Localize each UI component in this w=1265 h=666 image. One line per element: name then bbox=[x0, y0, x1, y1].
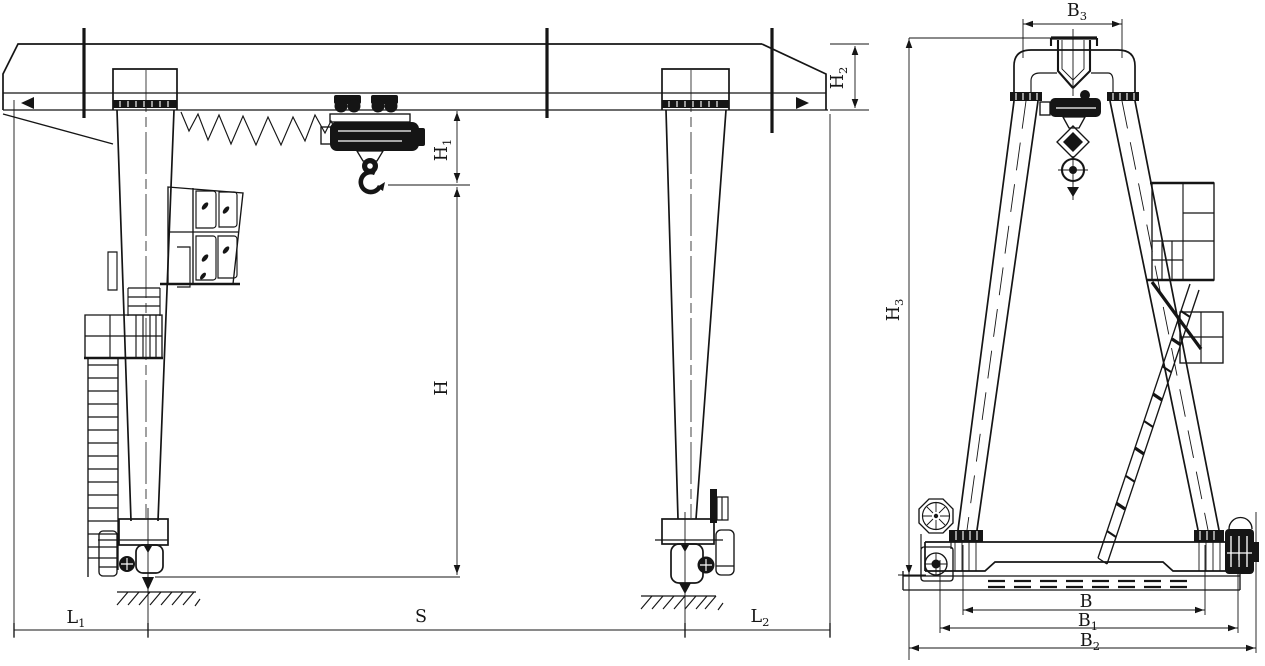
lower-cabinet-grid bbox=[1180, 312, 1223, 363]
cable-drum-hub bbox=[934, 514, 938, 518]
festoon-cable bbox=[181, 112, 333, 145]
leg-centerlines bbox=[967, 101, 1208, 530]
upper-cabinet-caps bbox=[1147, 183, 1214, 280]
dimension-label-b2: B2 bbox=[1080, 631, 1100, 653]
right-foot-band bbox=[1194, 530, 1224, 542]
arch-inner bbox=[1031, 73, 1113, 97]
left-leg bbox=[108, 69, 190, 521]
front-elevation-view: H1 H2 H L1 S L2 bbox=[3, 28, 869, 638]
hoist-end-view bbox=[1040, 90, 1101, 200]
arch-outer bbox=[1014, 50, 1135, 97]
right-buffer bbox=[716, 530, 734, 575]
dimension-label-h1: H1 bbox=[432, 139, 454, 162]
top-frame bbox=[1010, 29, 1139, 101]
hoist-side-box bbox=[1040, 102, 1050, 115]
side-elevation-view: B3 H3 B B1 B2 bbox=[884, 1, 1259, 660]
right-bracket-frame bbox=[717, 497, 728, 520]
right-bracket-plate bbox=[710, 489, 717, 523]
right-leg bbox=[662, 69, 729, 519]
cabinet-doors bbox=[196, 191, 237, 280]
dimension-arrowheads bbox=[454, 46, 859, 574]
hidden-lines bbox=[988, 581, 1188, 587]
right-leg-outline bbox=[662, 69, 729, 519]
drawing-sheet: H1 H2 H L1 S L2 bbox=[0, 0, 1265, 666]
left-leg-outline bbox=[113, 69, 177, 521]
dimension-label-h: H bbox=[432, 380, 452, 395]
dimension-label-b3: B3 bbox=[1067, 1, 1087, 23]
hook-pulley-hub bbox=[367, 163, 373, 169]
left-buffer bbox=[99, 531, 117, 576]
access-structure bbox=[84, 288, 163, 577]
electrical-cabinet bbox=[160, 187, 243, 284]
dimension-label-b: B bbox=[1080, 592, 1093, 612]
sill-beam-outline bbox=[925, 542, 1233, 571]
dimension-label-h2: H2 bbox=[828, 67, 850, 90]
dimension-label-s: S bbox=[415, 607, 427, 627]
hoist-right-cap bbox=[416, 128, 425, 146]
gantry-crane-technical-drawing: H1 H2 H L1 S L2 bbox=[0, 0, 1265, 666]
dimension-label-b1: B1 bbox=[1078, 611, 1098, 633]
cabinet-door-handles bbox=[199, 201, 231, 280]
left-ground-hatch bbox=[117, 592, 200, 606]
left-foot-band bbox=[949, 530, 983, 542]
drive-motor-cap bbox=[1229, 518, 1252, 530]
front-view-dimensions: H1 H2 H L1 S L2 bbox=[14, 44, 869, 638]
sill-beam-assembly bbox=[903, 499, 1259, 590]
hook bbox=[361, 172, 380, 192]
hoist-top-knob bbox=[1080, 90, 1090, 100]
leg-steps bbox=[128, 288, 160, 316]
ladder-rungs bbox=[88, 365, 118, 558]
left-leg-top-band bbox=[113, 100, 177, 108]
drive-motor-flange bbox=[1254, 542, 1259, 562]
sheave-diamond-core bbox=[1063, 132, 1083, 152]
hook-ring-hub bbox=[1069, 166, 1077, 174]
dimension-label-h3: H3 bbox=[884, 299, 906, 322]
girder-section-webs bbox=[1058, 40, 1090, 88]
left-end-carriage bbox=[98, 519, 200, 606]
foot-band-texture bbox=[956, 531, 1214, 540]
extension-lines bbox=[14, 44, 869, 638]
trolley-frame bbox=[330, 114, 410, 122]
dimension-label-l1: L1 bbox=[67, 608, 86, 630]
right-leg-top-band bbox=[662, 100, 729, 108]
foot-verticals bbox=[955, 542, 1220, 571]
ladder-rungs-side bbox=[1107, 311, 1190, 537]
right-ground-hatch bbox=[641, 596, 723, 610]
left-wheel-hub bbox=[932, 560, 941, 569]
dimension-label-l2: L2 bbox=[751, 607, 770, 629]
right-end-carriage bbox=[641, 489, 734, 610]
hoist-body bbox=[330, 122, 419, 151]
left-carriage-box bbox=[119, 519, 168, 545]
